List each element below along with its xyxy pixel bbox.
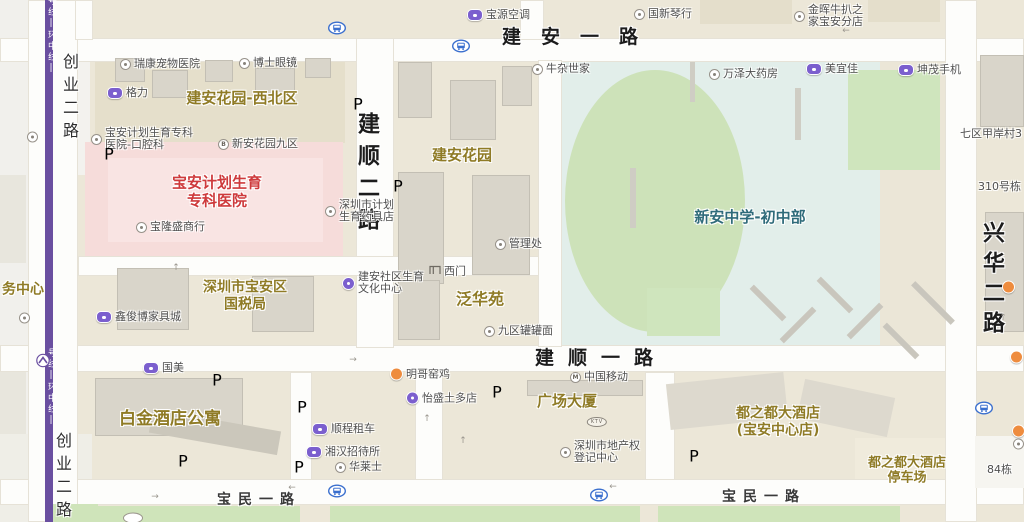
parking-icon[interactable]: P bbox=[689, 447, 699, 466]
poi-label-text: 顺程租车 bbox=[331, 423, 375, 435]
orange-poi-icon bbox=[1012, 425, 1024, 438]
area-label-line: 都之都大酒店 bbox=[736, 405, 820, 422]
poi-label-text: 金晖牛扒之家宝安分店 bbox=[808, 4, 863, 28]
poi-label-text: 国新琴行 bbox=[648, 8, 692, 20]
ring-poi-icon bbox=[325, 206, 336, 217]
poi-qiqu-jiaan-village[interactable]: 七区甲岸村3 bbox=[960, 128, 1022, 140]
metro-line-label-north: 号线|环中线| bbox=[45, 0, 58, 75]
oval-stub-icon bbox=[123, 513, 143, 522]
area-guangchang-dasha[interactable]: 广场大厦 bbox=[537, 393, 597, 411]
poi-building-84[interactable]: 84栋 bbox=[987, 464, 1012, 476]
area-xinan-middle-school[interactable]: 新安中学-初中部 bbox=[694, 209, 805, 227]
one-way-arrow-icon: ↑ bbox=[172, 263, 180, 273]
poi-gome[interactable]: 国美 bbox=[143, 362, 184, 374]
one-way-arrow-icon: ← bbox=[842, 26, 850, 36]
ring-poi-icon: B bbox=[218, 139, 229, 150]
area-duzhidu-hotel[interactable]: 都之都大酒店(宝安中心店) bbox=[736, 405, 820, 438]
poi-label-text: 国美 bbox=[162, 362, 184, 374]
parking-icon[interactable]: P bbox=[353, 95, 363, 114]
pcircle-poi-icon bbox=[342, 277, 355, 290]
poi-no310-building[interactable]: 310号栋 bbox=[978, 181, 1021, 193]
one-way-arrow-icon: ↑ bbox=[423, 414, 431, 424]
poi-kunmao-mobile[interactable]: 坤茂手机 bbox=[898, 64, 961, 76]
poi-right-edge-dot-3[interactable] bbox=[1012, 425, 1024, 438]
road-label-chuangye-erlu-north: 创业二路 bbox=[57, 53, 81, 145]
area-label-line: 宝安计划生育 bbox=[172, 174, 262, 192]
poi-mingge-roast-chicken[interactable]: 明哥窑鸡 bbox=[390, 368, 450, 381]
purple-poi-icon bbox=[143, 362, 159, 374]
poi-right-edge-dot-2[interactable] bbox=[1010, 351, 1023, 364]
area-jianan-garden[interactable]: 建安花园 bbox=[432, 147, 492, 165]
area-label-line: 白金酒店公寓 bbox=[119, 409, 221, 429]
ring-poi-icon bbox=[19, 313, 30, 324]
road-label-jianan-yilu: 建安一路 bbox=[502, 22, 658, 49]
poi-label-text: 建安社区生育文化中心 bbox=[358, 271, 424, 295]
poi-label-text: 新安花园九区 bbox=[232, 138, 298, 150]
poi-label-text: 310号栋 bbox=[978, 181, 1021, 193]
poi-label-text: 中国移动 bbox=[584, 371, 628, 383]
poi-label-text: 博士眼镜 bbox=[253, 57, 297, 69]
area-baoan-tax-bureau[interactable]: 深圳市宝安区国税局 bbox=[203, 279, 287, 312]
gate-icon bbox=[429, 265, 441, 278]
ring-poi-icon bbox=[560, 447, 571, 458]
area-platinum-hotel-apartment[interactable]: 白金酒店公寓 bbox=[119, 409, 221, 429]
ring-poi-icon bbox=[634, 9, 645, 20]
poi-west-gate[interactable]: 西门 bbox=[429, 265, 466, 278]
ring-poi-icon bbox=[136, 222, 147, 233]
area-label-line: 停车场 bbox=[868, 471, 946, 486]
poi-label-text: 格力 bbox=[126, 87, 148, 99]
orange-poi-icon bbox=[1010, 351, 1023, 364]
poi-label-text: 84栋 bbox=[987, 464, 1012, 476]
poi-label-text: 瑞康宠物医院 bbox=[134, 58, 200, 70]
area-baoan-family-planning-hospital[interactable]: 宝安计划生育专科医院 bbox=[172, 174, 262, 209]
poi-label-text: 宝安计划生育专科医院-口腔科 bbox=[105, 127, 193, 151]
one-way-arrow-icon: → bbox=[349, 355, 357, 365]
area-label-line: 新安中学-初中部 bbox=[694, 209, 805, 227]
road-label-jianshun-yilu: 建顺一路 bbox=[535, 343, 667, 370]
map-canvas[interactable]: 建安一路建顺一路建顺二路兴华二路宝民一路宝民一路创业二路创业二路号线|环中线|号… bbox=[0, 0, 1024, 522]
area-label-line: 泛华苑 bbox=[456, 291, 504, 310]
ring-poi-icon bbox=[239, 58, 250, 69]
poi-right-edge-dot-1[interactable] bbox=[1002, 281, 1015, 294]
area-label-line: 国税局 bbox=[203, 296, 287, 313]
poi-boshi-glasses[interactable]: 博士眼镜 bbox=[239, 57, 297, 69]
poi-label-text: 明哥窑鸡 bbox=[406, 368, 450, 380]
area-label-line: (宝安中心店) bbox=[736, 422, 820, 439]
metro-station-icon[interactable] bbox=[36, 353, 50, 372]
area-duzhidu-hotel-parking[interactable]: 都之都大酒店停车场 bbox=[868, 456, 946, 487]
poi-label-text: 宝源空调 bbox=[486, 9, 530, 21]
area-label-line: 建安花园 bbox=[432, 147, 492, 165]
poi-label-text: 管理处 bbox=[509, 238, 542, 250]
area-label-line: 务中心 bbox=[2, 282, 44, 299]
one-way-arrow-icon: ← bbox=[288, 483, 296, 493]
bus-stop-icon[interactable] bbox=[328, 20, 346, 39]
purple-poi-icon bbox=[467, 9, 483, 21]
ring-poi-icon bbox=[1013, 439, 1024, 450]
poi-meiyijia[interactable]: 美宜佳 bbox=[806, 63, 858, 75]
ring-poi-icon: M bbox=[570, 372, 581, 383]
bus-stop-icon[interactable] bbox=[975, 400, 993, 419]
poi-gree[interactable]: 格力 bbox=[107, 87, 148, 99]
poi-baoyuan-aircon[interactable]: 宝源空调 bbox=[467, 9, 530, 21]
bus-stop-icon[interactable] bbox=[590, 487, 608, 506]
parking-icon[interactable]: P bbox=[297, 398, 307, 417]
area-label-line: 都之都大酒店 bbox=[868, 456, 946, 471]
poi-wanze-pharmacy[interactable]: 万泽大药房 bbox=[709, 68, 778, 80]
parking-icon[interactable]: P bbox=[212, 371, 222, 390]
orange-poi-icon bbox=[390, 368, 403, 381]
ring-poi-icon bbox=[532, 64, 543, 75]
parking-icon[interactable]: P bbox=[104, 145, 114, 164]
purple-poi-icon bbox=[312, 423, 328, 435]
one-way-arrow-icon: → bbox=[151, 492, 159, 502]
ring-poi-icon bbox=[484, 326, 495, 337]
poi-label-text: 湘汉招待所 bbox=[325, 446, 380, 458]
poi-shuncheng-car-rental[interactable]: 顺程租车 bbox=[312, 423, 375, 435]
poi-jiuqu-noodles[interactable]: 九区罐罐面 bbox=[484, 325, 553, 337]
ring-poi-icon bbox=[335, 462, 346, 473]
poi-baolongsheng-store[interactable]: 宝隆盛商行 bbox=[136, 221, 205, 233]
bus-stop-icon[interactable] bbox=[452, 38, 470, 57]
poi-label-text: 深圳市计划生育药具店 bbox=[339, 199, 394, 223]
poi-label-text: 深圳市地产权登记中心 bbox=[574, 440, 640, 464]
poi-niuza-shijia[interactable]: 牛杂世家 bbox=[532, 63, 590, 75]
area-service-center-cut[interactable]: 务中心 bbox=[2, 282, 44, 299]
poi-xianghan-hostel[interactable]: 湘汉招待所 bbox=[306, 446, 380, 458]
poi-xinjunbo-furniture[interactable]: 鑫俊博家具城 bbox=[96, 311, 181, 323]
parking-icon[interactable]: P bbox=[178, 452, 188, 471]
parking-icon[interactable]: P bbox=[393, 177, 403, 196]
road-label-chuangye-erlu-south: 创业二路 bbox=[50, 432, 74, 522]
poi-label-text: 宝隆盛商行 bbox=[150, 221, 205, 233]
poi-label-text: 美宜佳 bbox=[825, 63, 858, 75]
poi-jianan-community-center[interactable]: 建安社区生育文化中心 bbox=[342, 271, 424, 295]
area-label-line: 建安花园-西北区 bbox=[186, 90, 297, 108]
poi-ruikang-pet-hospital[interactable]: 瑞康宠物医院 bbox=[120, 58, 200, 70]
poi-label-text: 西门 bbox=[444, 265, 466, 277]
one-way-arrow-icon: ↑ bbox=[999, 313, 1007, 323]
poi-label-text: 万泽大药房 bbox=[723, 68, 778, 80]
parking-icon[interactable]: P bbox=[492, 383, 502, 402]
ring-poi-icon bbox=[794, 11, 805, 22]
poi-left-edge-dot-1[interactable] bbox=[27, 132, 38, 143]
purple-poi-icon bbox=[898, 64, 914, 76]
poi-real-estate-registry[interactable]: 深圳市地产权登记中心 bbox=[560, 440, 640, 464]
poi-china-mobile[interactable]: M中国移动 bbox=[570, 371, 628, 383]
poi-label-text: 九区罐罐面 bbox=[498, 325, 553, 337]
purple-poi-icon bbox=[107, 87, 123, 99]
ring-poi-icon bbox=[120, 59, 131, 70]
pcircle-poi-icon bbox=[406, 392, 419, 405]
poi-left-edge-dot-2[interactable] bbox=[19, 313, 30, 324]
ring-poi-icon bbox=[27, 132, 38, 143]
poi-guoxin-piano[interactable]: 国新琴行 bbox=[634, 8, 692, 20]
ktv-badge[interactable]: KTV bbox=[587, 417, 607, 427]
area-label-line: 专科医院 bbox=[172, 192, 262, 210]
purple-poi-icon bbox=[96, 311, 112, 323]
area-jianan-garden-northwest[interactable]: 建安花园-西北区 bbox=[186, 90, 297, 108]
poi-label-text: 华莱士 bbox=[349, 461, 382, 473]
area-label-line: 深圳市宝安区 bbox=[203, 279, 287, 296]
poi-xinan-garden-9[interactable]: B新安花园九区 bbox=[218, 138, 298, 150]
poi-right-edge-dot-4[interactable] bbox=[1013, 439, 1024, 450]
purple-poi-icon bbox=[306, 446, 322, 458]
one-way-arrow-icon: ↑ bbox=[459, 436, 467, 446]
poi-label-text: 怡盛土多店 bbox=[422, 392, 477, 404]
bus-stop-icon[interactable] bbox=[328, 483, 346, 502]
poi-yisheng-store[interactable]: 怡盛土多店 bbox=[406, 392, 477, 405]
one-way-arrow-icon: ← bbox=[609, 482, 617, 492]
poi-hualaishi[interactable]: 华莱士 bbox=[335, 461, 382, 473]
poi-label-text: 牛杂世家 bbox=[546, 63, 590, 75]
ring-poi-icon bbox=[91, 134, 102, 145]
area-fanhuayuan[interactable]: 泛华苑 bbox=[456, 291, 504, 310]
poi-label-text: 七区甲岸村3 bbox=[960, 128, 1022, 140]
poi-family-planning-supplies[interactable]: 深圳市计划生育药具店 bbox=[325, 199, 394, 223]
ring-poi-icon bbox=[495, 239, 506, 250]
purple-poi-icon bbox=[806, 63, 822, 75]
area-label-line: 广场大厦 bbox=[537, 393, 597, 411]
poi-jinhui-steak-house[interactable]: 金晖牛扒之家宝安分店 bbox=[794, 4, 863, 28]
poi-label-text: 坤茂手机 bbox=[917, 64, 961, 76]
orange-poi-icon bbox=[1002, 281, 1015, 294]
parking-icon[interactable]: P bbox=[294, 458, 304, 477]
map-labels-layer: 建安一路建顺一路建顺二路兴华二路宝民一路宝民一路创业二路创业二路号线|环中线|号… bbox=[0, 0, 1024, 522]
poi-label-text: 鑫俊博家具城 bbox=[115, 311, 181, 323]
poi-management-office[interactable]: 管理处 bbox=[495, 238, 542, 250]
road-label-baomin-yilu-east: 宝民一路 bbox=[722, 486, 806, 506]
ring-poi-icon bbox=[709, 69, 720, 80]
